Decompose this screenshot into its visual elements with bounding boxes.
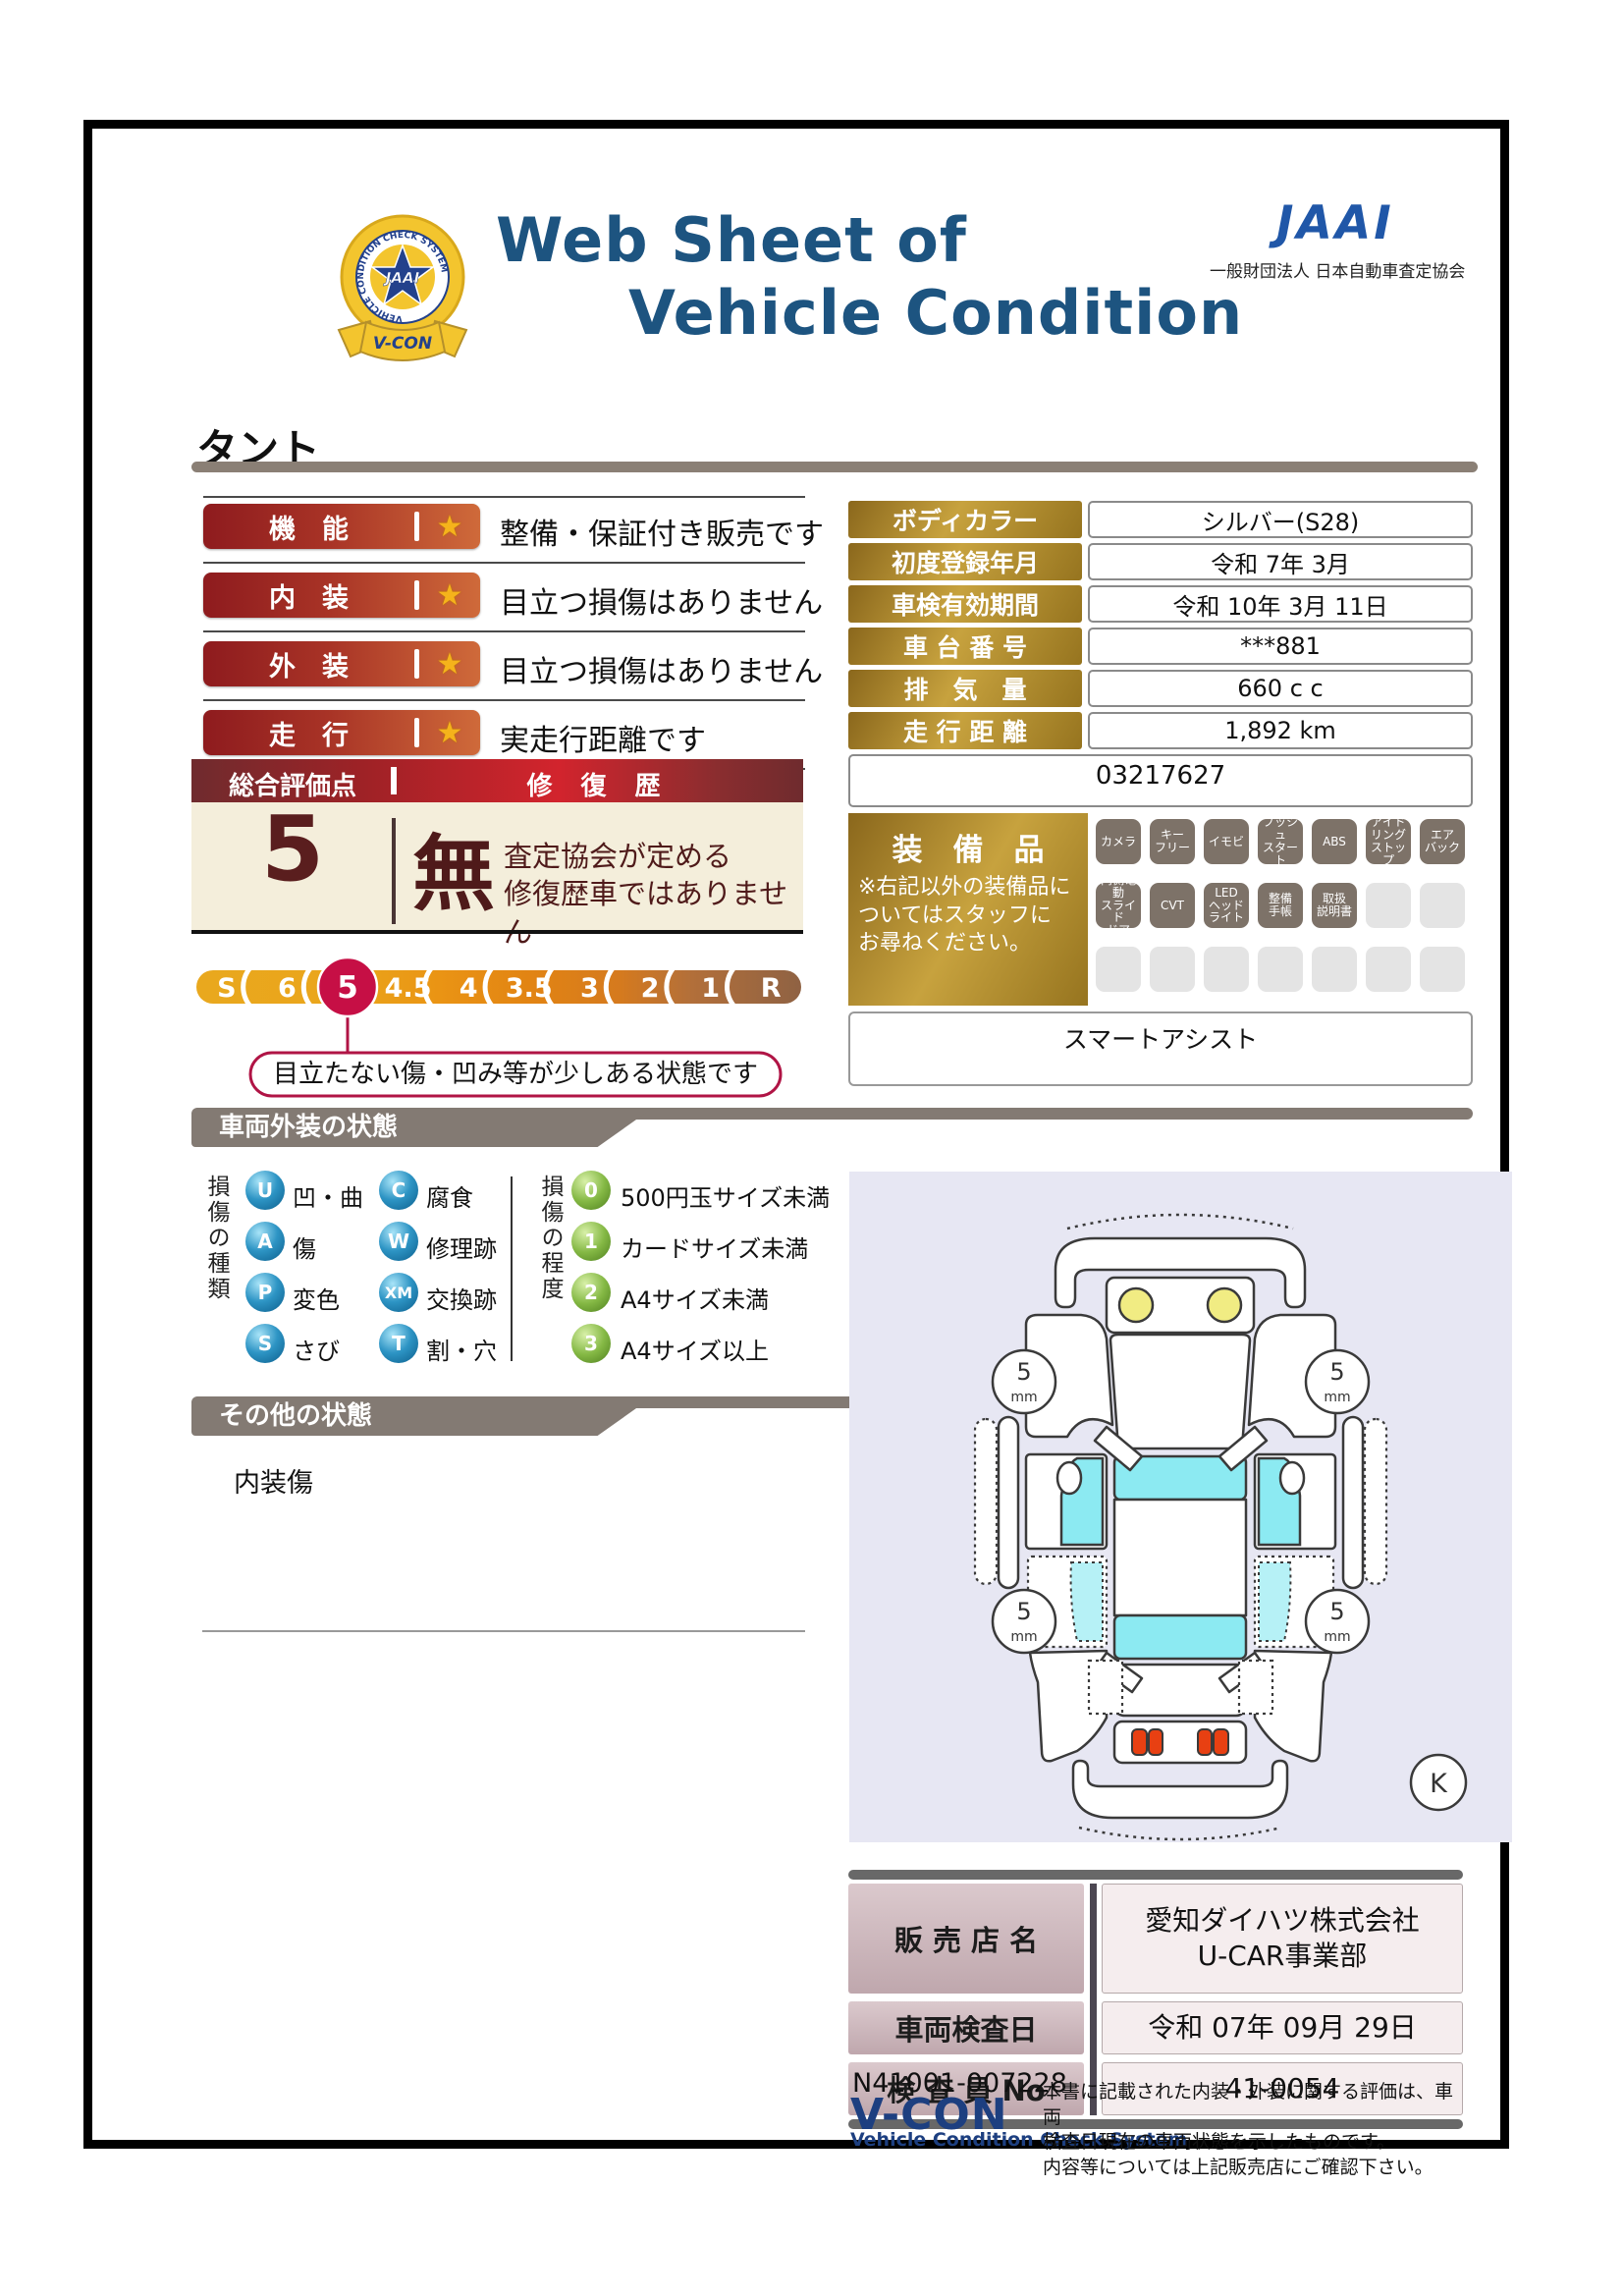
tire-rear-right: 5 mm bbox=[1306, 1590, 1369, 1653]
star-icon: ★ bbox=[419, 647, 480, 682]
damage-levels-label: 損傷の程度 bbox=[533, 1175, 567, 1302]
svg-text:4: 4 bbox=[460, 973, 478, 1004]
tire-front-right: 5 mm bbox=[1306, 1350, 1369, 1413]
inspection-date-label: 車両検査日 bbox=[848, 2001, 1084, 2054]
damage-level-label: 500円玉サイズ未満 bbox=[621, 1178, 830, 1213]
equipment-chip-push-start: プッシュ スタート bbox=[1258, 819, 1303, 864]
equipment-chip-keyfree: キー フリー bbox=[1150, 819, 1195, 864]
equipment-chip-empty bbox=[1366, 947, 1411, 992]
damage-level-label: カードサイズ未満 bbox=[621, 1230, 808, 1264]
damage-type-label: 変色 bbox=[293, 1281, 340, 1315]
rear-roof-window bbox=[1114, 1615, 1246, 1659]
exterior-section-title: 車両外装の状態 bbox=[191, 1108, 653, 1147]
dealer-name-label: 販 売 店 名 bbox=[848, 1884, 1084, 1994]
info-value-body-color: シルバー(S28) bbox=[1088, 501, 1473, 538]
rating-comment: 目立つ損傷はありません bbox=[500, 647, 823, 690]
star-icon: ★ bbox=[419, 578, 480, 613]
damage-type-code: S bbox=[245, 1324, 285, 1363]
jaai-logo: JAAI bbox=[1276, 196, 1394, 250]
equipment-chip-service-book: 整備 手帳 bbox=[1258, 883, 1303, 928]
info-label-body-color: ボディカラー bbox=[848, 501, 1082, 538]
overall-bottom-line bbox=[191, 930, 803, 934]
overall-score-value: 5 bbox=[191, 796, 394, 902]
vcon-emblem: VEHICLE CONDITION CHECK SYSTEM JAAI V-CO… bbox=[309, 196, 496, 393]
body-divider bbox=[392, 818, 396, 924]
svg-text:mm: mm bbox=[1010, 1390, 1037, 1405]
notes-underline bbox=[202, 1630, 805, 1632]
divider-rule bbox=[191, 462, 1478, 472]
score-callout-text: 目立たない傷・凹み等が少しある状態です bbox=[273, 1060, 758, 1089]
damage-type-code: W bbox=[379, 1222, 418, 1261]
info-label-inspection-validity: 車検有効期間 bbox=[848, 585, 1082, 623]
svg-text:R: R bbox=[761, 973, 782, 1004]
equipment-chip-airbag: エア バック bbox=[1420, 819, 1465, 864]
svg-text:3: 3 bbox=[580, 973, 599, 1004]
svg-text:3.5: 3.5 bbox=[506, 973, 553, 1004]
equipment-panel: 装 備 品 ※右記以外の装備品に ついてはスタッフに お尋ねください。 bbox=[848, 813, 1088, 1006]
rating-label: 内 装 bbox=[203, 576, 414, 615]
smart-assist-note: スマートアシスト bbox=[848, 1011, 1473, 1086]
equipment-chip-empty bbox=[1258, 947, 1303, 992]
page-title-line2: Vehicle Condition bbox=[628, 277, 1243, 349]
class-marker: K bbox=[1411, 1755, 1466, 1810]
svg-text:5: 5 bbox=[1329, 1358, 1344, 1386]
rear-dotted-arc bbox=[1079, 1828, 1281, 1839]
rating-label: 走 行 bbox=[203, 714, 414, 752]
rating-comment: 目立つ損傷はありません bbox=[500, 578, 823, 622]
inspection-date-value: 令和 07年 09月 29日 bbox=[1102, 2001, 1463, 2054]
rating-badge-exterior: 外 装 ★ bbox=[203, 641, 480, 686]
damage-type-code: XM bbox=[379, 1273, 418, 1312]
equipment-chip-empty bbox=[1420, 947, 1465, 992]
page-title-line1: Web Sheet of bbox=[496, 204, 967, 276]
damage-type-label: 割・穴 bbox=[426, 1332, 497, 1366]
rating-separator bbox=[203, 562, 805, 564]
rating-comment: 実走行距離です bbox=[500, 716, 706, 759]
equipment-chip-led-headlight: LED ヘッド ライト bbox=[1204, 883, 1249, 928]
legend-divider bbox=[511, 1176, 513, 1361]
damage-type-code: P bbox=[245, 1273, 285, 1312]
rating-badge-function: 機 能 ★ bbox=[203, 504, 480, 549]
damage-type-label: 凹・曲 bbox=[293, 1178, 363, 1213]
star-icon: ★ bbox=[419, 510, 480, 544]
svg-text:5: 5 bbox=[1016, 1598, 1031, 1625]
repair-history-label: 修 復 歴 bbox=[394, 766, 803, 802]
other-condition-note: 内装傷 bbox=[234, 1461, 313, 1500]
headlight-icon bbox=[1208, 1288, 1241, 1322]
other-section-title: その他の状態 bbox=[191, 1396, 653, 1436]
info-value-displacement: 660 c c bbox=[1088, 670, 1473, 707]
svg-text:2: 2 bbox=[641, 973, 660, 1004]
rating-label: 外 装 bbox=[203, 645, 414, 683]
damage-level-code: 3 bbox=[571, 1324, 611, 1363]
hood-windshield bbox=[1110, 1335, 1250, 1449]
svg-text:S: S bbox=[217, 973, 236, 1004]
vehicle-condition-sheet: VEHICLE CONDITION CHECK SYSTEM JAAI V-CO… bbox=[0, 0, 1623, 2296]
info-value-inspection-validity: 令和 10年 3月 11日 bbox=[1088, 585, 1473, 623]
equipment-chip-manual: 取扱 説明書 bbox=[1312, 883, 1357, 928]
equipment-chip-empty bbox=[1204, 947, 1249, 992]
overall-score-body: 5 無 査定協会が定める 修復歴車ではありません bbox=[191, 802, 803, 930]
damage-type-code: C bbox=[379, 1171, 418, 1210]
dealer-table-top-bar bbox=[848, 1870, 1463, 1880]
star-icon: ★ bbox=[419, 716, 480, 750]
equipment-chip-power-slide-door: 両側電動 スライド ドア bbox=[1096, 883, 1141, 928]
damage-level-code: 2 bbox=[571, 1273, 611, 1312]
rear-bumper bbox=[1073, 1761, 1287, 1818]
equipment-chip-camera: カメラ bbox=[1096, 819, 1141, 864]
equipment-chip-abs: ABS bbox=[1312, 819, 1357, 864]
disclaimer-text: 本書に記載された内装・外装に関する評価は、車両 検査日現在の車両状態を示したもの… bbox=[1043, 2080, 1465, 2181]
rating-badge-interior: 内 装 ★ bbox=[203, 573, 480, 618]
damage-level-label: A4サイズ未満 bbox=[621, 1281, 769, 1315]
dealer-name-value: 愛知ダイハツ株式会社 U-CAR事業部 bbox=[1102, 1884, 1463, 1994]
car-damage-diagram: .ol { fill:#fff; stroke:#3a3a3a; stroke-… bbox=[849, 1172, 1512, 1842]
info-value-mileage: 1,892 km bbox=[1088, 712, 1473, 749]
svg-text:K: K bbox=[1430, 1769, 1448, 1799]
damage-type-label: 修理跡 bbox=[426, 1230, 497, 1264]
equipment-grid: カメラ キー フリー イモビ プッシュ スタート ABS アイド リング ストッ… bbox=[1096, 819, 1467, 992]
svg-text:5: 5 bbox=[1329, 1598, 1344, 1625]
svg-text:mm: mm bbox=[1324, 1629, 1350, 1645]
tire-front-left: 5 mm bbox=[993, 1350, 1055, 1413]
equipment-note: ※右記以外の装備品に ついてはスタッフに お尋ねください。 bbox=[858, 874, 1070, 958]
damage-type-code: T bbox=[379, 1324, 418, 1363]
emblem-vcon-text: V-CON bbox=[373, 334, 432, 354]
info-label-mileage: 走 行 距 離 bbox=[848, 712, 1082, 749]
info-label-displacement: 排 気 量 bbox=[848, 670, 1082, 707]
repair-history-value: 無 bbox=[412, 808, 495, 927]
tire-rear-left: 5 mm bbox=[993, 1590, 1055, 1653]
equipment-chip-cvt: CVT bbox=[1150, 883, 1195, 928]
info-value-chassis-number: ***881 bbox=[1088, 628, 1473, 665]
svg-text:4.5: 4.5 bbox=[385, 973, 432, 1004]
svg-text:6: 6 bbox=[278, 973, 297, 1004]
damage-type-label: 傷 bbox=[293, 1230, 316, 1264]
reference-number: 03217627 bbox=[848, 754, 1473, 807]
rating-badge-mileage: 走 行 ★ bbox=[203, 710, 480, 755]
rating-separator bbox=[203, 496, 805, 498]
equipment-chip-empty bbox=[1420, 883, 1465, 928]
damage-type-label: 腐食 bbox=[426, 1178, 473, 1213]
equipment-chip-idling-stop: アイド リング ストップ bbox=[1366, 819, 1411, 864]
equipment-title: 装 備 品 bbox=[848, 825, 1088, 869]
damage-types-label: 損傷の種類 bbox=[199, 1175, 233, 1302]
headlight-icon bbox=[1119, 1288, 1153, 1322]
score-scale: S 6 5 4.5 4 3.5 3 2 1 R 5 目立たない傷・凹み等が少しあ… bbox=[194, 953, 803, 1102]
damage-level-code: 1 bbox=[571, 1222, 611, 1261]
equipment-chip-empty bbox=[1366, 883, 1411, 928]
damage-type-label: 交換跡 bbox=[426, 1281, 497, 1315]
rating-separator bbox=[203, 630, 805, 632]
damage-type-code: U bbox=[245, 1171, 285, 1210]
svg-text:mm: mm bbox=[1010, 1629, 1037, 1645]
equipment-chip-immobilizer: イモビ bbox=[1204, 819, 1249, 864]
roof-panel bbox=[1114, 1500, 1246, 1615]
front-dotted-arc bbox=[1067, 1215, 1293, 1229]
damage-type-label: さび bbox=[293, 1332, 340, 1366]
damage-level-label: A4サイズ以上 bbox=[621, 1332, 769, 1366]
rating-separator bbox=[203, 699, 805, 701]
info-value-first-registration: 令和 7年 3月 bbox=[1088, 543, 1473, 580]
equipment-chip-empty bbox=[1312, 947, 1357, 992]
svg-text:1: 1 bbox=[701, 973, 720, 1004]
info-label-chassis-number: 車 台 番 号 bbox=[848, 628, 1082, 665]
svg-text:mm: mm bbox=[1324, 1390, 1350, 1405]
selected-score-value: 5 bbox=[337, 970, 358, 1006]
damage-level-code: 0 bbox=[571, 1171, 611, 1210]
info-label-first-registration: 初度登録年月 bbox=[848, 543, 1082, 580]
rating-comment: 整備・保証付き販売です bbox=[500, 510, 824, 553]
emblem-center-text: JAAI bbox=[383, 269, 420, 287]
equipment-chip-empty bbox=[1150, 947, 1195, 992]
equipment-chip-empty bbox=[1096, 947, 1141, 992]
rating-label: 機 能 bbox=[203, 508, 414, 546]
damage-type-code: A bbox=[245, 1222, 285, 1261]
svg-text:5: 5 bbox=[1016, 1358, 1031, 1386]
jaai-subtitle: 一般財団法人 日本自動車査定協会 bbox=[1210, 257, 1465, 282]
